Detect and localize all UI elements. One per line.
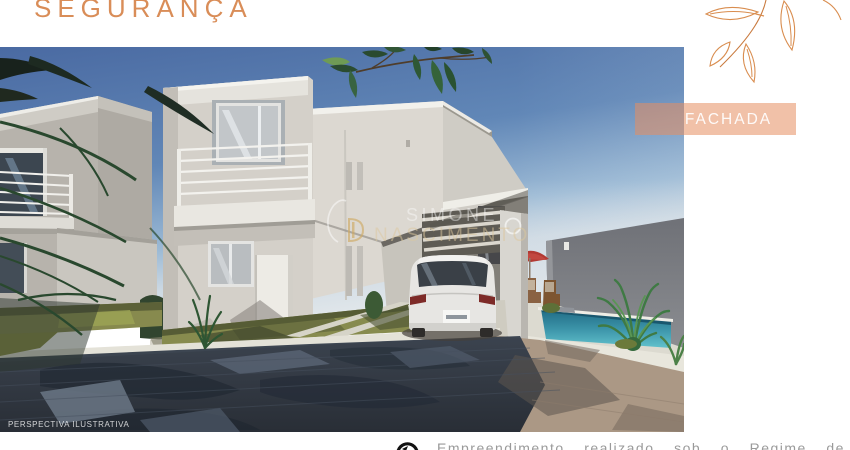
svg-text:SIMONE: SIMONE — [406, 205, 498, 225]
svg-text:PERSPECTIVA ILUSTRATIVA: PERSPECTIVA ILUSTRATIVA — [8, 420, 129, 429]
svg-text:NASCIMENTO: NASCIMENTO — [374, 225, 530, 246]
